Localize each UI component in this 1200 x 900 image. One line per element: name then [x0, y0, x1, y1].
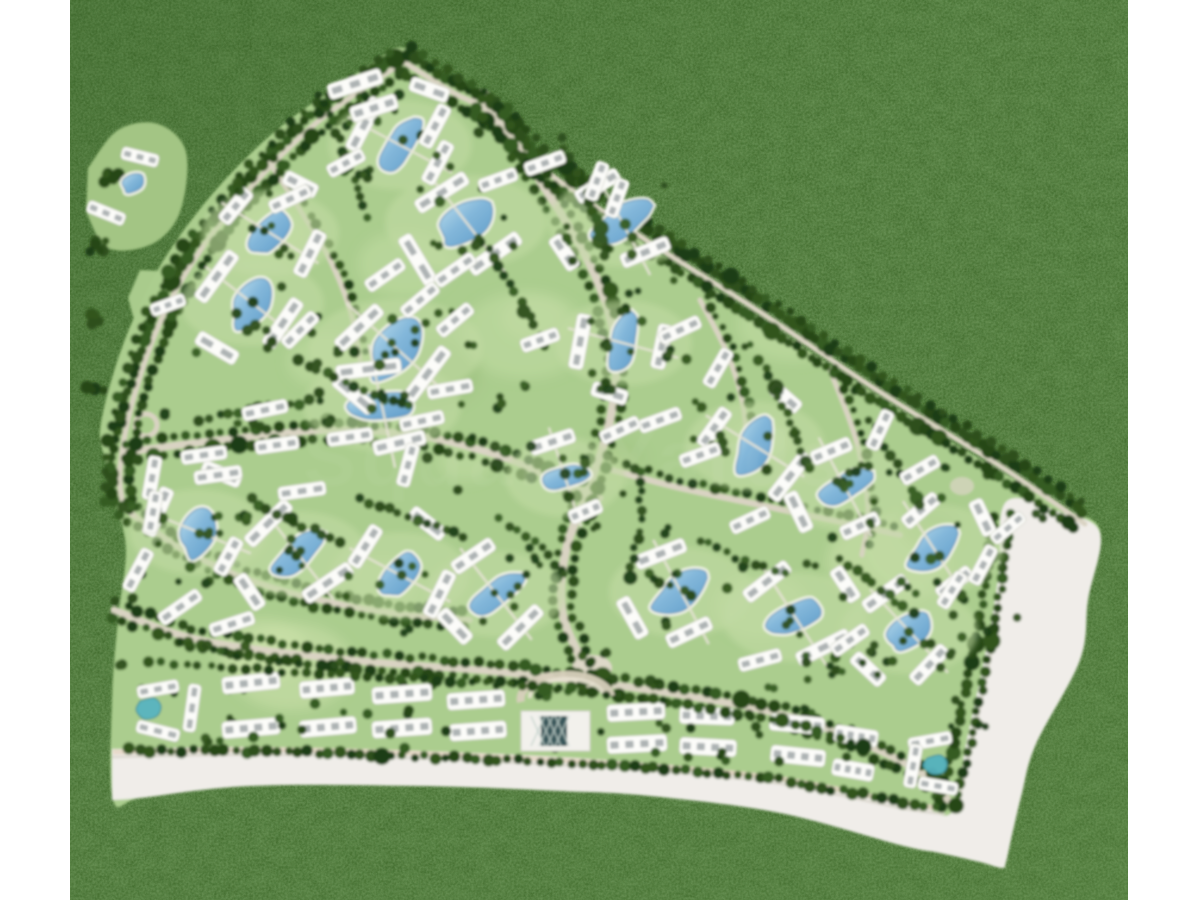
svg-text:SquareYards: SquareYards	[304, 414, 847, 502]
